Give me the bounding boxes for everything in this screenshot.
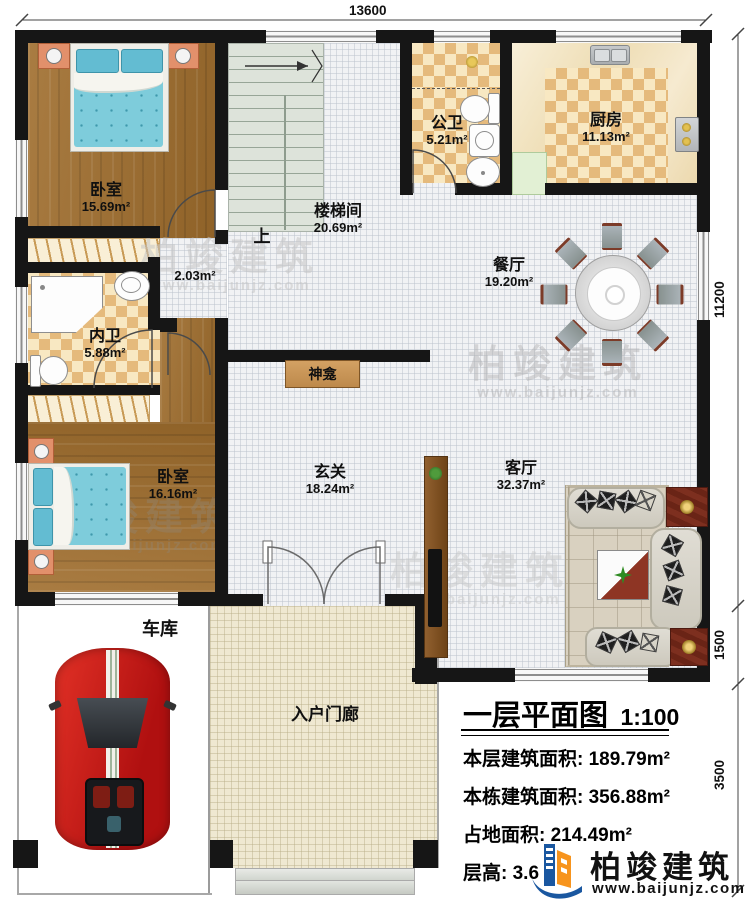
chair (602, 339, 622, 366)
kitchen-rug (545, 68, 668, 183)
wall (400, 183, 413, 195)
plant (614, 566, 632, 584)
sink-drain (481, 171, 485, 175)
sink-basin (611, 49, 627, 62)
garage-porch-divider (208, 606, 210, 893)
plant (429, 467, 442, 480)
pillow (76, 49, 119, 73)
wardrobe-1 (27, 238, 160, 264)
brand-logo: 柏竣建筑 www.baijunjz.com (528, 840, 748, 906)
wall (215, 230, 228, 244)
drawing-title-row: 一层平面图 1:100 (463, 692, 679, 734)
table-medallion (682, 640, 696, 654)
bed (70, 43, 169, 152)
pillar (13, 840, 38, 868)
pillow (33, 468, 53, 506)
chair (541, 285, 568, 305)
pillar (413, 840, 438, 868)
dimension-height-main: 11200 (712, 281, 727, 318)
wall (148, 385, 160, 395)
pillow (33, 508, 53, 546)
window (434, 30, 490, 43)
window (266, 30, 376, 43)
wall (500, 43, 512, 183)
staircase-divider (284, 95, 286, 230)
tv (428, 549, 442, 627)
shrine-label: 神龛 (309, 364, 337, 384)
toilet (460, 95, 490, 123)
wall (228, 594, 263, 606)
nightstand (38, 43, 70, 69)
kitchen-sink (590, 45, 630, 65)
window (15, 287, 28, 363)
window (515, 668, 648, 682)
window (15, 463, 28, 540)
chair (657, 285, 684, 305)
sink-basin (594, 49, 610, 62)
table-medallion (680, 500, 694, 514)
nightstand (167, 43, 199, 69)
engine-part (107, 816, 121, 832)
brand-logo-icon (528, 840, 586, 900)
wall (385, 594, 415, 606)
window (697, 232, 710, 320)
building-area-line: 本栋建筑面积: 356.88m² (463, 782, 670, 809)
floor-area-line: 本层建筑面积: 189.79m² (463, 744, 670, 771)
shrine: 神龛 (285, 360, 360, 388)
toilet (39, 356, 68, 385)
bed (28, 463, 130, 550)
sink (114, 271, 150, 301)
porch-step-2 (235, 880, 415, 895)
car-engine (85, 778, 144, 846)
dining-table (575, 255, 651, 331)
floor-plan: 柏竣建筑 www.baijunjz.com 柏竣建筑 www.baijunjz.… (0, 0, 750, 913)
dimension-width: 13600 (345, 3, 391, 18)
engine-part (117, 786, 134, 808)
side-table (670, 628, 708, 666)
staircase (228, 43, 324, 232)
lamp (175, 48, 191, 64)
sink (466, 157, 500, 187)
washer-drum (475, 131, 494, 150)
bedroom2-floor-ext (160, 318, 215, 422)
bath-divider (412, 88, 500, 89)
drawing-title: 一层平面图 (463, 700, 608, 732)
tv-cabinet (424, 456, 448, 658)
pillow (121, 49, 163, 73)
sink-basin (121, 277, 141, 293)
burner (682, 137, 691, 146)
dimension-ticks (732, 28, 744, 897)
side-table (666, 487, 708, 527)
wall (15, 226, 160, 238)
drawing-scale: 1:100 (620, 704, 679, 730)
wall (215, 43, 228, 190)
chair (602, 223, 622, 250)
wall (545, 183, 697, 195)
brand-website: www.baijunjz.com (592, 880, 745, 897)
wall (160, 318, 177, 332)
car (55, 640, 170, 858)
lazy-susan (605, 285, 625, 305)
corridor-floor (160, 238, 227, 318)
window (556, 30, 681, 43)
stove (675, 117, 699, 152)
nightstand (28, 548, 54, 575)
pillar (208, 840, 233, 868)
nightstand (28, 438, 54, 465)
wall (400, 43, 412, 183)
lamp (34, 444, 49, 459)
fridge (512, 152, 547, 195)
dimension-height-mid: 1500 (712, 630, 727, 660)
coffee-table (597, 550, 649, 600)
floor-drain (466, 56, 478, 68)
sofa-pillow (597, 491, 617, 511)
lamp (46, 48, 62, 64)
window (15, 140, 28, 217)
burner (682, 123, 691, 132)
washing-machine (469, 124, 500, 157)
lamp (34, 554, 49, 569)
wardrobe-2 (27, 395, 150, 424)
shower-drain (40, 285, 45, 290)
engine-part (93, 786, 110, 808)
title-underline (461, 729, 669, 736)
wall (148, 257, 160, 330)
window (55, 592, 178, 606)
sofa-pillow (640, 633, 660, 653)
porch-floor (210, 606, 439, 868)
